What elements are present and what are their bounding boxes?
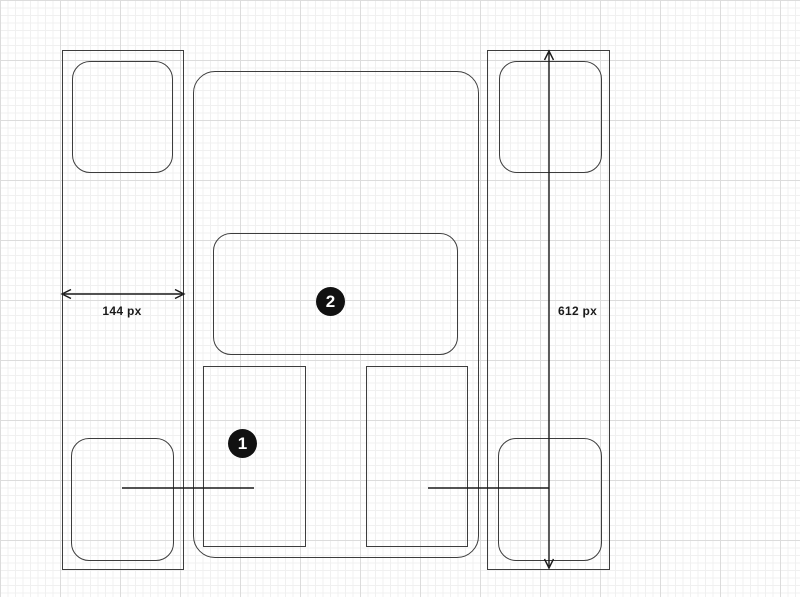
right-column-bottom-card — [498, 438, 602, 561]
content-block-left — [203, 366, 306, 547]
right-column-top-card — [499, 61, 602, 173]
height-dimension-label: 612 px — [558, 304, 597, 318]
marker-2-badge: 2 — [316, 287, 345, 316]
left-column-top-card — [72, 61, 173, 173]
content-block-right — [366, 366, 468, 547]
width-dimension-label: 144 px — [92, 304, 152, 318]
left-column-bottom-card — [71, 438, 174, 561]
marker-1-badge: 1 — [228, 429, 257, 458]
wireframe-canvas: 144 px 612 px 1 2 — [0, 0, 800, 597]
